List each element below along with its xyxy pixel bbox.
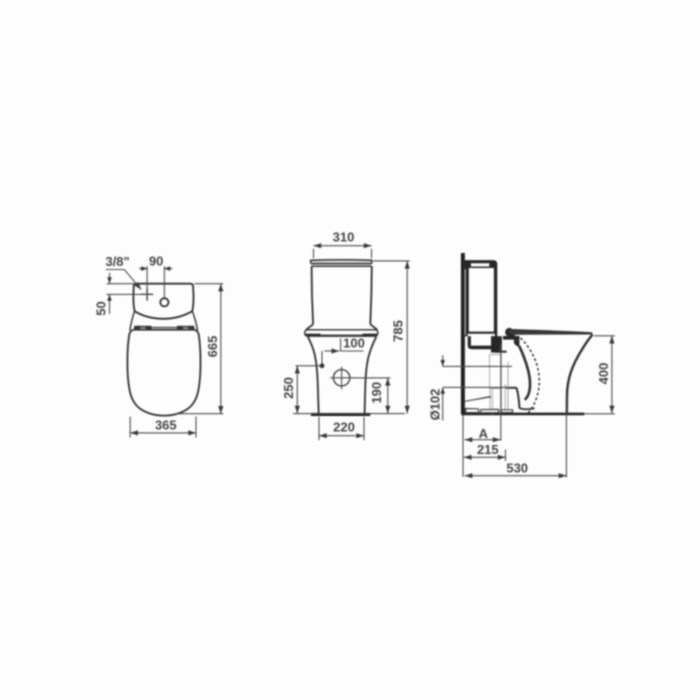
svg-text:530: 530 bbox=[506, 460, 528, 475]
svg-text:220: 220 bbox=[333, 420, 355, 435]
svg-text:90: 90 bbox=[149, 254, 163, 269]
svg-text:665: 665 bbox=[205, 336, 220, 358]
svg-text:190: 190 bbox=[369, 382, 384, 404]
svg-text:100: 100 bbox=[343, 336, 365, 351]
svg-text:785: 785 bbox=[391, 320, 406, 342]
svg-text:310: 310 bbox=[333, 230, 355, 245]
svg-text:365: 365 bbox=[155, 417, 177, 432]
svg-text:215: 215 bbox=[477, 442, 499, 457]
svg-text:250: 250 bbox=[281, 377, 296, 399]
svg-text:50: 50 bbox=[94, 301, 109, 315]
svg-text:A: A bbox=[479, 426, 489, 441]
svg-text:400: 400 bbox=[596, 363, 611, 385]
svg-text:Ø102: Ø102 bbox=[427, 389, 442, 421]
svg-text:3/8": 3/8" bbox=[105, 254, 129, 269]
